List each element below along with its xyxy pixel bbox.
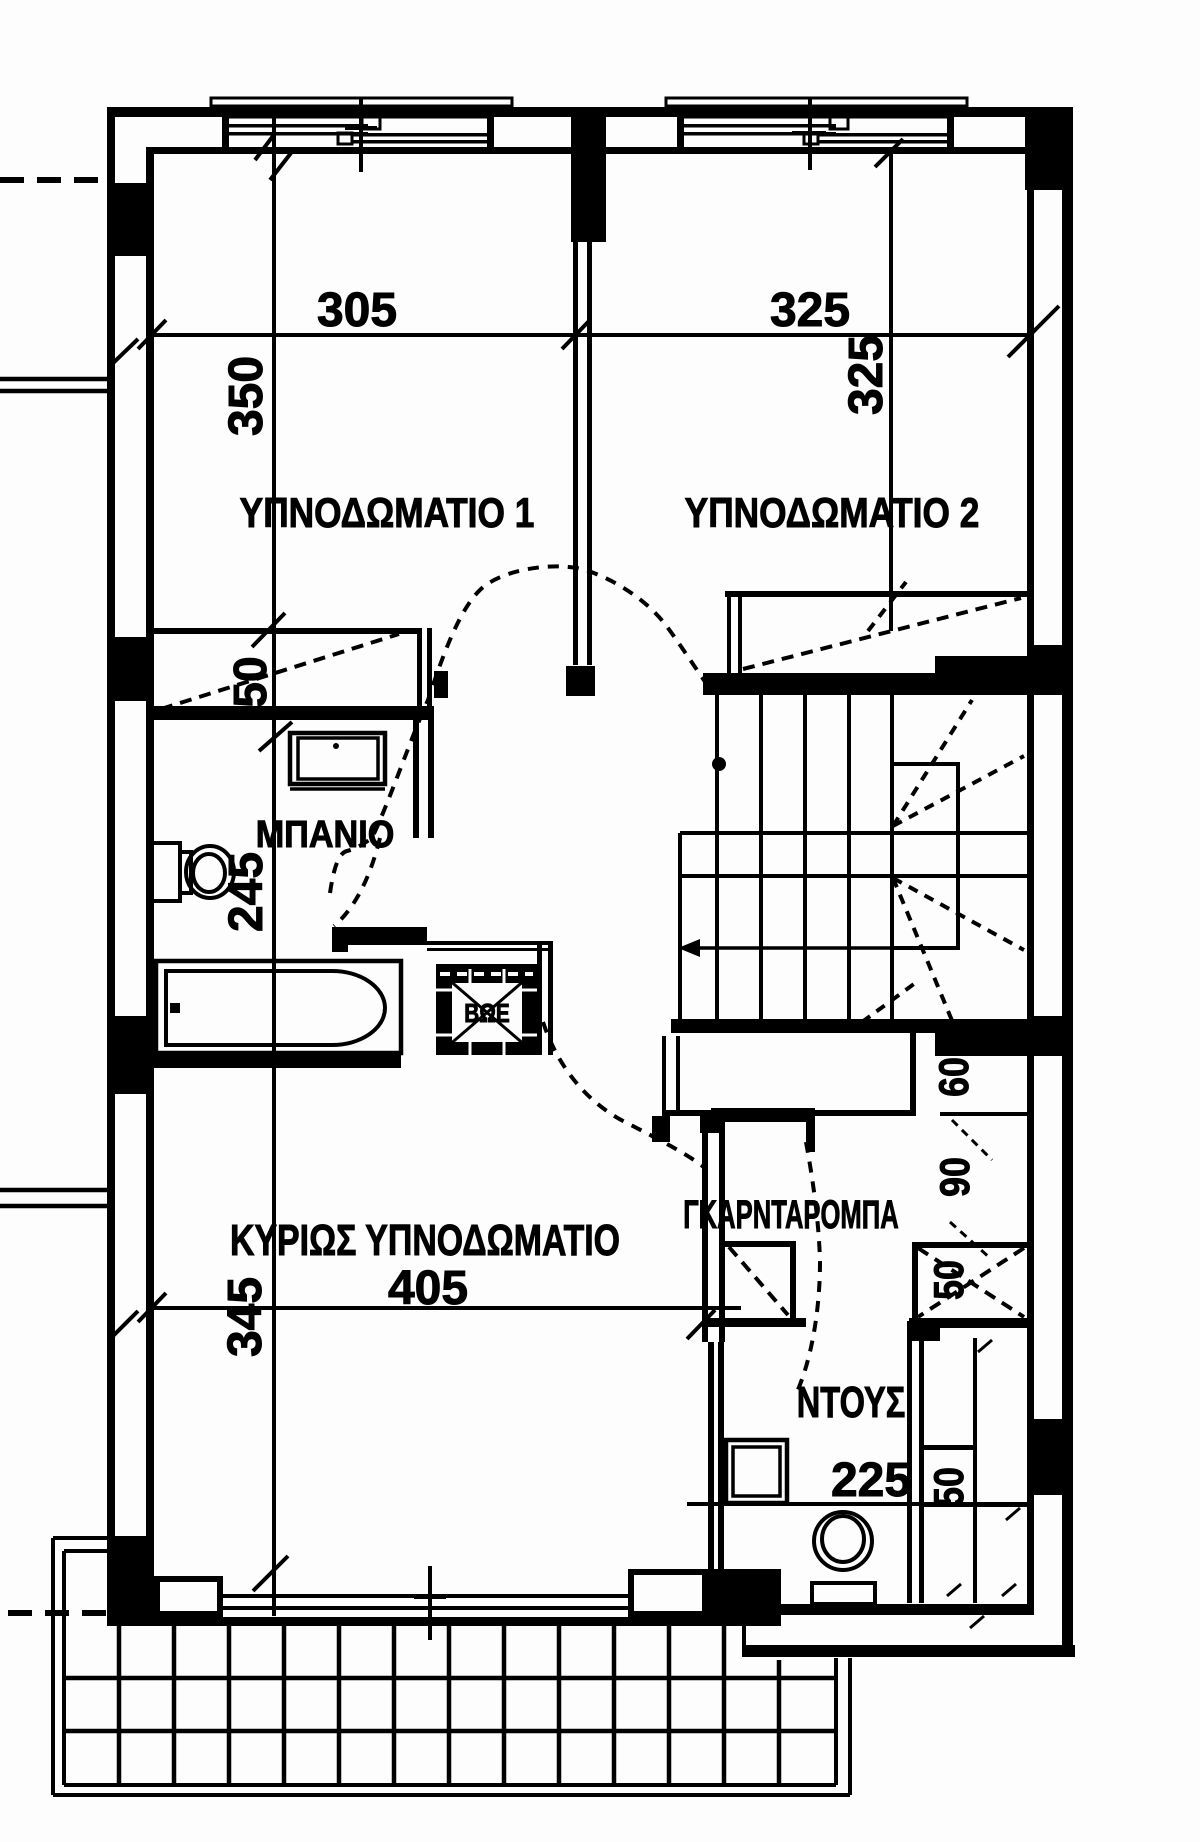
svg-text:ΒΩΕ: ΒΩΕ — [464, 999, 510, 1028]
svg-text:ΝΤΟΥΣ: ΝΤΟΥΣ — [797, 1378, 905, 1427]
svg-text:50: 50 — [926, 1260, 972, 1300]
svg-text:405: 405 — [388, 1262, 468, 1315]
svg-text:350: 350 — [220, 356, 273, 436]
svg-text:60: 60 — [931, 1057, 977, 1097]
svg-text:50: 50 — [926, 1467, 972, 1507]
svg-text:ΥΠΝΟΔΩΜΑΤΙΟ 1: ΥΠΝΟΔΩΜΑΤΙΟ 1 — [240, 490, 535, 537]
svg-text:245: 245 — [220, 852, 273, 932]
svg-text:225: 225 — [831, 1454, 911, 1507]
svg-text:ΜΠΑΝΙΟ: ΜΠΑΝΙΟ — [256, 812, 395, 855]
svg-text:325: 325 — [770, 284, 850, 337]
svg-text:325: 325 — [840, 335, 893, 415]
svg-text:ΚΥΡΙΩΣ ΥΠΝΟΔΩΜΑΤΙΟ: ΚΥΡΙΩΣ ΥΠΝΟΔΩΜΑΤΙΟ — [230, 1216, 620, 1265]
svg-text:90: 90 — [932, 1157, 978, 1197]
svg-text:ΥΠΝΟΔΩΜΑΤΙΟ 2: ΥΠΝΟΔΩΜΑΤΙΟ 2 — [685, 490, 980, 537]
svg-text:50: 50 — [224, 656, 276, 707]
svg-text:345: 345 — [219, 1277, 272, 1357]
svg-text:305: 305 — [317, 284, 397, 337]
svg-text:ΓΚΑΡΝΤΑΡΟΜΠΑ: ΓΚΑΡΝΤΑΡΟΜΠΑ — [683, 1193, 898, 1237]
